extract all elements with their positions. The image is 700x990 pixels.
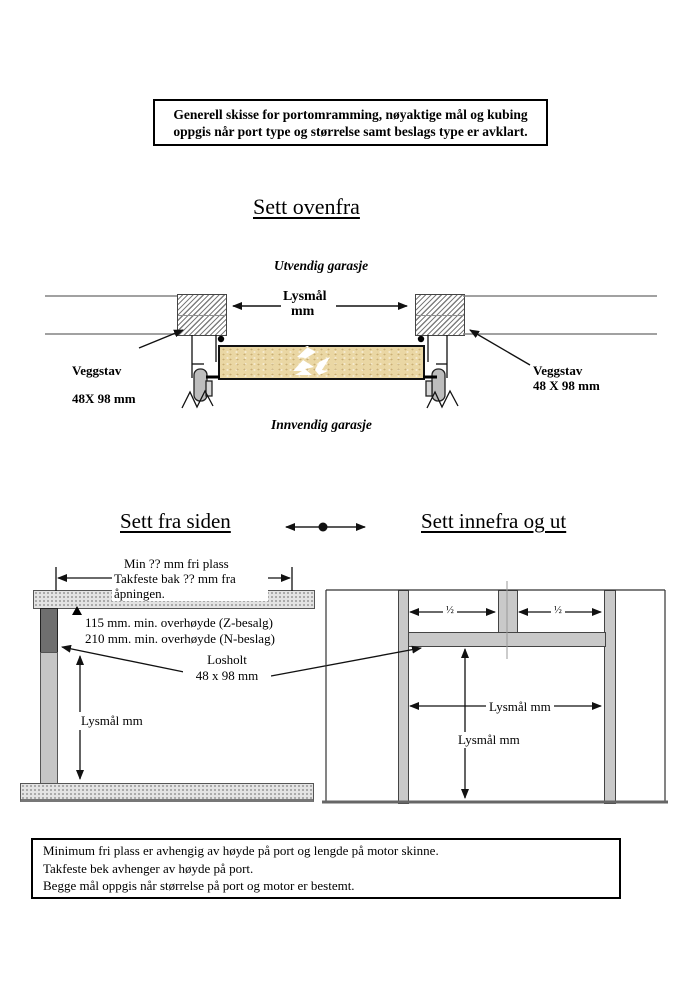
frame-post-center — [498, 590, 518, 634]
opening-width-line2: mm — [283, 304, 327, 319]
door-track-left — [182, 335, 216, 408]
frame-post-right — [604, 590, 616, 804]
inside-garage-label: Innvendig garasje — [271, 417, 372, 433]
side-view-title: Sett fra siden — [120, 509, 231, 534]
outside-garage-label: Utvendig garasje — [274, 258, 368, 274]
door-panel — [218, 345, 425, 380]
views-link-arrow — [286, 523, 365, 532]
headroom-note-line2: 210 mm. min. overhøyde (N-beslag) — [85, 631, 275, 647]
half-width-label-left: ½ — [443, 605, 457, 616]
wall-post-headroom-section — [40, 608, 58, 654]
stud-label-right-line1: Veggstav — [533, 363, 582, 378]
lintel-beam — [408, 632, 606, 647]
lintel-note-line1: Losholt — [183, 652, 271, 668]
lintel-note-line2: 48 x 98 mm — [183, 668, 271, 684]
opening-width-line1: Lysmål — [283, 289, 327, 304]
lintel-note: Losholt 48 x 98 mm — [183, 652, 271, 683]
header-note-line2: oppgis når port type og størrelse samt b… — [155, 123, 546, 140]
front-view-title: Sett innefra og ut — [421, 509, 566, 534]
side-opening-height-label: Lysmål mm — [78, 712, 146, 730]
footer-note-box: Minimum fri plass er avhengig av høyde p… — [31, 838, 621, 899]
header-note-line1: Generell skisse for portomramming, nøyak… — [155, 106, 546, 123]
clearance-note-line3: åpningen. — [114, 586, 266, 601]
wall-post — [40, 652, 58, 785]
wall-stud-block-left — [177, 294, 227, 336]
opening-width-label: Lysmål mm — [283, 289, 327, 319]
wall-stud-block-right — [415, 294, 465, 336]
top-view-wall-lines — [45, 296, 657, 334]
door-track-right — [426, 335, 458, 408]
footer-note-line2: Takfeste bek avhenger av høyde på port. — [33, 860, 619, 878]
footer-note-line1: Minimum fri plass er avhengig av høyde p… — [33, 842, 619, 860]
page: Generell skisse for portomramming, nøyak… — [0, 0, 700, 990]
frame-post-left — [398, 590, 409, 804]
clearance-note-line2: Takfeste bak ?? mm fra — [114, 571, 266, 586]
stud-label-left-line2: 48X 98 mm — [72, 391, 136, 406]
top-view-title: Sett ovenfra — [253, 194, 360, 220]
clearance-note-line1: Min ?? mm fri plass — [114, 556, 266, 571]
headroom-note-line1: 115 mm. min. overhøyde (Z-besalg) — [85, 615, 275, 631]
stud-label-left-line1: Veggstav — [72, 363, 121, 378]
front-opening-height-label: Lysmål mm — [455, 732, 523, 748]
stud-label-left: Veggstav 48X 98 mm — [72, 363, 136, 406]
headroom-note: 115 mm. min. overhøyde (Z-besalg) 210 mm… — [85, 615, 275, 646]
clearance-note: Min ?? mm fri plass Takfeste bak ?? mm f… — [112, 556, 268, 601]
header-note-box: Generell skisse for portomramming, nøyak… — [153, 99, 548, 146]
track-dot-right — [418, 336, 424, 342]
stud-label-right: Veggstav 48 X 98 mm — [533, 363, 600, 393]
stud-label-right-line2: 48 X 98 mm — [533, 378, 600, 393]
footer-note-line3: Begge mål oppgis når størrelse på port o… — [33, 877, 619, 895]
floor-bar — [20, 783, 314, 802]
track-dot-left — [218, 336, 224, 342]
front-opening-width-label: Lysmål mm — [486, 699, 554, 715]
half-width-label-right: ½ — [551, 605, 565, 616]
